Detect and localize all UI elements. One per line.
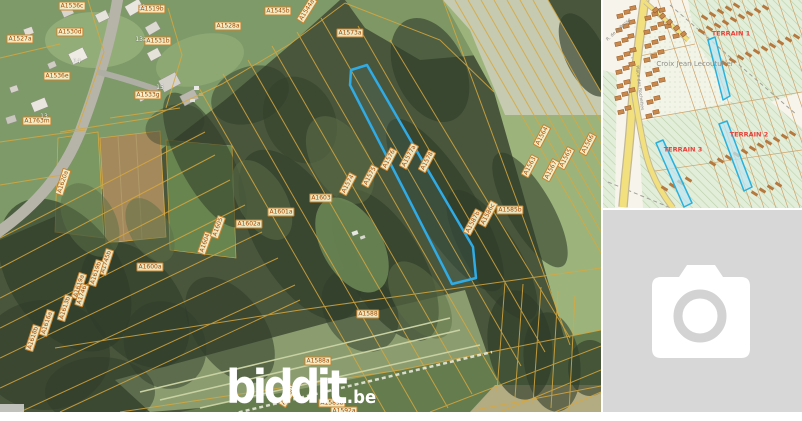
biddit-logo-tld: .be bbox=[347, 387, 376, 408]
aerial-photo[interactable]: A1536cA1519bA1545bA1544aA1527aA1530dA153… bbox=[0, 0, 601, 412]
biddit-watermark: biddit.be bbox=[226, 366, 376, 408]
cadastral-map-thumbnail[interactable]: TERRAIN 1TERRAIN 2TERRAIN 3 Croix Jean L… bbox=[603, 0, 802, 208]
cadastral-map-graphics bbox=[603, 0, 802, 208]
camera-icon bbox=[603, 210, 802, 412]
photo-placeholder[interactable] bbox=[603, 210, 802, 412]
biddit-logo-text: biddit bbox=[226, 360, 344, 412]
attribution-box bbox=[0, 404, 24, 412]
aerial-map-graphics bbox=[0, 0, 601, 412]
listing-media-gallery: A1536cA1519bA1545bA1544aA1527aA1530dA153… bbox=[0, 0, 802, 421]
